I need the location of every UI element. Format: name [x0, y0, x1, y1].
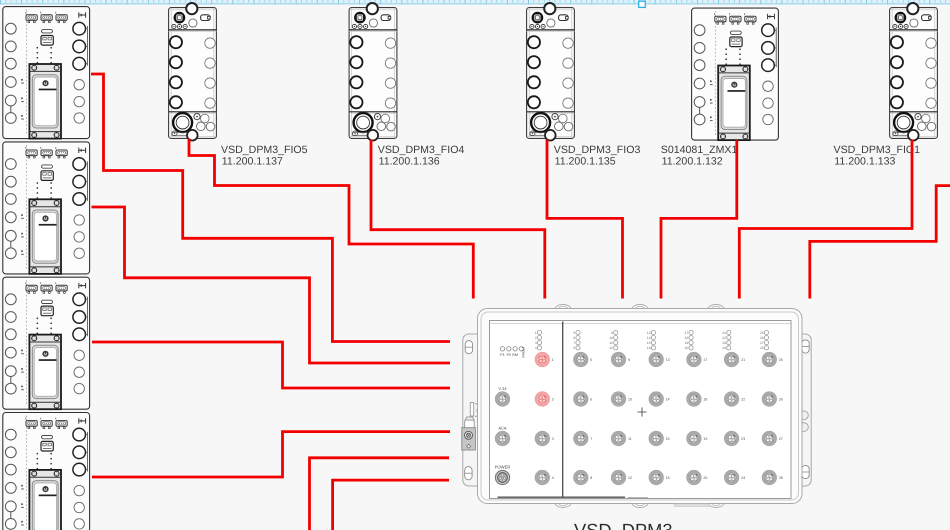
svg-text:26: 26: [779, 397, 783, 401]
svg-text:27: 27: [760, 341, 764, 345]
svg-text:22: 22: [741, 397, 745, 401]
svg-text:7: 7: [573, 341, 575, 345]
svg-text:9: 9: [628, 358, 630, 362]
svg-text:19: 19: [685, 341, 689, 345]
svg-text:1: 1: [552, 358, 554, 362]
svg-text:ACA: ACA: [498, 426, 507, 431]
svg-text:28: 28: [779, 476, 783, 480]
svg-text:P1: P1: [500, 353, 504, 357]
svg-text:VSD_DPM3_FIO3: VSD_DPM3_FIO3: [554, 144, 641, 156]
svg-text:16: 16: [647, 346, 651, 350]
svg-text:FAULT: FAULT: [522, 346, 526, 358]
svg-text:24: 24: [722, 346, 726, 350]
svg-text:4: 4: [552, 476, 554, 480]
svg-text:23: 23: [741, 437, 745, 441]
svg-text:17: 17: [703, 358, 707, 362]
svg-text:12: 12: [609, 346, 613, 350]
svg-text:11.200.1.136: 11.200.1.136: [379, 156, 440, 168]
svg-text:POWER: POWER: [495, 465, 511, 470]
svg-text:20: 20: [703, 476, 707, 480]
svg-text:11: 11: [609, 341, 613, 345]
svg-text:16: 16: [666, 476, 670, 480]
svg-text:10: 10: [609, 336, 613, 340]
svg-text:7: 7: [590, 437, 592, 441]
svg-text:12: 12: [628, 476, 632, 480]
svg-text:5: 5: [573, 331, 575, 335]
svg-text:VSD_DPM3: VSD_DPM3: [574, 519, 673, 530]
svg-text:10: 10: [628, 397, 632, 401]
svg-text:2: 2: [552, 397, 554, 401]
svg-text:S014081_ZMX1: S014081_ZMX1: [661, 144, 738, 156]
svg-text:11.200.1.135: 11.200.1.135: [555, 156, 616, 168]
svg-text:V 24: V 24: [498, 386, 507, 391]
svg-text:13: 13: [666, 358, 670, 362]
svg-text:17: 17: [685, 331, 689, 335]
svg-text:24: 24: [741, 476, 745, 480]
svg-text:21: 21: [722, 331, 726, 335]
svg-text:6: 6: [590, 397, 592, 401]
svg-text:14: 14: [647, 336, 651, 340]
svg-text:11.200.1.133: 11.200.1.133: [834, 156, 895, 168]
svg-text:18: 18: [703, 397, 707, 401]
svg-text:11.200.1.137: 11.200.1.137: [222, 156, 283, 168]
svg-text:18: 18: [685, 336, 689, 340]
svg-text:VSD_DPM3_FIO4: VSD_DPM3_FIO4: [378, 144, 465, 156]
svg-text:23: 23: [722, 341, 726, 345]
svg-text:VSD_DPM3_FIO5: VSD_DPM3_FIO5: [221, 144, 308, 156]
svg-text:28: 28: [760, 346, 764, 350]
svg-text:20: 20: [685, 346, 689, 350]
svg-text:4: 4: [535, 346, 537, 350]
svg-text:8: 8: [590, 476, 592, 480]
svg-text:21: 21: [741, 358, 745, 362]
svg-text:13: 13: [647, 331, 651, 335]
svg-text:26: 26: [760, 336, 764, 340]
svg-text:RM: RM: [512, 353, 518, 357]
svg-text:VSD_DPM3_FIO1: VSD_DPM3_FIO1: [834, 144, 921, 156]
svg-text:2: 2: [535, 336, 537, 340]
svg-text:P2: P2: [507, 353, 511, 357]
svg-text:25: 25: [760, 331, 764, 335]
svg-text:15: 15: [647, 341, 651, 345]
svg-text:5: 5: [590, 358, 592, 362]
svg-text:27: 27: [779, 437, 783, 441]
svg-text:14: 14: [666, 397, 670, 401]
svg-text:15: 15: [666, 437, 670, 441]
svg-text:3: 3: [535, 341, 537, 345]
svg-text:6: 6: [573, 336, 575, 340]
svg-text:19: 19: [703, 437, 707, 441]
svg-text:1: 1: [535, 331, 537, 335]
svg-text:11.200.1.132: 11.200.1.132: [662, 156, 723, 168]
svg-text:9: 9: [611, 331, 613, 335]
svg-text:11: 11: [628, 437, 632, 441]
svg-text:3: 3: [552, 437, 554, 441]
svg-text:25: 25: [779, 358, 783, 362]
svg-text:22: 22: [722, 336, 726, 340]
svg-text:8: 8: [573, 346, 575, 350]
